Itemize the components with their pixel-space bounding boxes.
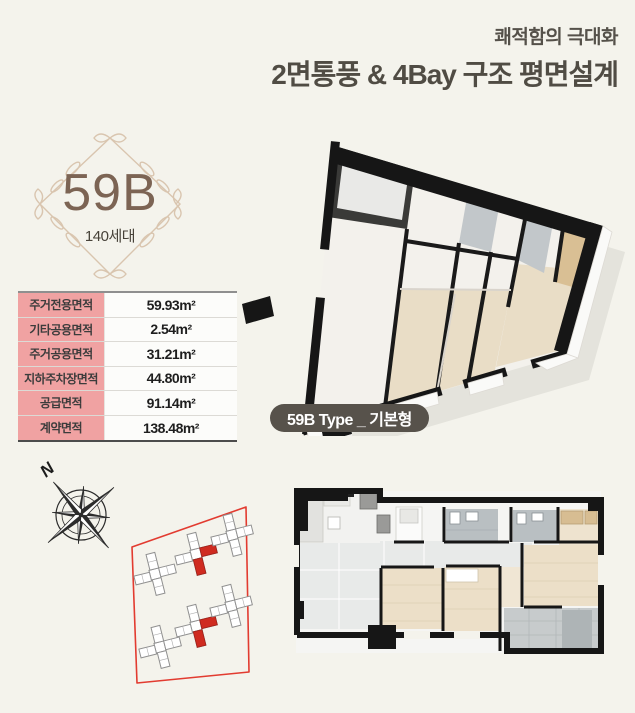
area-label: 주거공용면적 xyxy=(18,342,105,366)
table-row: 주거공용면적 31.21m² xyxy=(18,342,237,367)
area-value: 91.14m² xyxy=(105,391,237,415)
area-label: 기타공용면적 xyxy=(18,318,105,342)
area-value: 59.93m² xyxy=(105,293,237,317)
area-label: 공급면적 xyxy=(18,391,105,415)
header-subtitle: 쾌적함의 극대화 xyxy=(271,22,618,49)
brochure-page: 쾌적함의 극대화 2면통풍 & 4Bay 구조 평면설계 59B xyxy=(0,0,635,713)
unit-type-badge: 59B 140세대 xyxy=(28,128,192,284)
area-value: 44.80m² xyxy=(105,367,237,391)
building-footprint xyxy=(130,549,181,600)
area-label: 지하주차장면적 xyxy=(18,367,105,391)
area-value: 138.48m² xyxy=(105,416,237,441)
area-label: 계약면적 xyxy=(18,416,105,441)
type-label-pill: 59B Type _ 기본형 xyxy=(270,404,429,432)
site-plan xyxy=(108,492,280,710)
area-value: 2.54m² xyxy=(105,318,237,342)
table-row: 공급면적 91.14m² xyxy=(18,391,237,416)
table-row: 기타공용면적 2.54m² xyxy=(18,318,237,343)
area-value: 31.21m² xyxy=(105,342,237,366)
floorplan-3d-render xyxy=(240,104,635,436)
area-table: 주거전용면적 59.93m² 기타공용면적 2.54m² 주거공용면적 31.2… xyxy=(18,291,237,442)
compass-north-label: N xyxy=(36,460,58,481)
unit-type-label: 59B xyxy=(62,167,158,219)
table-row: 계약면적 138.48m² xyxy=(18,416,237,441)
households-count: 140세대 xyxy=(85,225,135,246)
table-row: 지하주차장면적 44.80m² xyxy=(18,367,237,392)
area-label: 주거전용면적 xyxy=(18,293,105,317)
floorplan-2d xyxy=(294,485,606,660)
page-header: 쾌적함의 극대화 2면통풍 & 4Bay 구조 평면설계 xyxy=(271,22,618,93)
table-row: 주거전용면적 59.93m² xyxy=(18,293,237,318)
page-title: 2면통풍 & 4Bay 구조 평면설계 xyxy=(271,53,618,93)
